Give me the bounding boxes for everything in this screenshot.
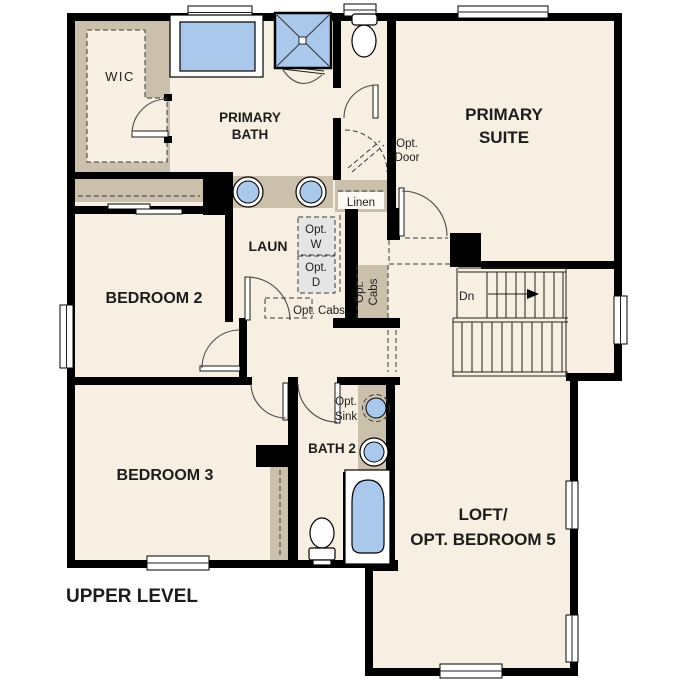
window-icon [458,6,548,18]
wall-suite-chunk [387,208,400,240]
bathtub-icon [170,15,263,77]
wall-bedroom3-closet-chunk [256,445,298,467]
bedroom2-label: BEDROOM 2 [106,290,203,307]
wall-laundry-bottom-bar [333,318,400,328]
loft-label-2: OPT. BEDROOM 5 [410,530,555,549]
wall-hall-left [239,318,247,385]
wall-bedroom2-3-divider [67,377,252,385]
primary-suite-label-1: PRIMARY [465,105,543,124]
laundry-label: LAUN [249,238,288,254]
primary-bath-label-1: PRIMARY [219,110,281,125]
opt-dryer-label-2: D [312,277,320,289]
window-icon [60,305,73,368]
opt-sink-label-1: Opt. [335,396,357,408]
window-icon [566,615,578,662]
wall-laundry-left [225,206,233,322]
toilet-icon [352,14,377,57]
window-icon [614,296,627,344]
wall-wc-left-low [333,118,341,180]
bathtub-icon [345,470,390,564]
stairs-down-label: Dn [459,289,474,303]
shower-icon [275,13,331,68]
window-icon [147,556,209,570]
opt-cabs-vertical-label-1: Opt. [354,281,366,303]
wall-suite-left [387,13,396,210]
opt-cabs-vertical-label-2: Cabs [368,278,380,305]
page-title: UPPER LEVEL [66,586,198,607]
wall-wic-door-jamb-top [164,94,172,101]
bedroom2-closet [75,179,203,202]
toilet-icon [309,518,335,565]
wall-loft-left [365,568,373,676]
opt-door-label-1: Opt. [396,138,418,150]
wall-wc-left-top [333,13,341,88]
primary-suite-label-2: SUITE [479,128,529,147]
floor-plan-page: WIC PRIMARY BATH PRIMARY SUITE BEDROOM 2… [0,0,687,687]
opt-dryer-label-1: Opt. [305,262,327,274]
bath2-label: BATH 2 [308,441,356,456]
wall-laundry-linen-column [345,208,358,325]
wall-bedroom3-right [288,377,298,568]
opt-washer-label-2: W [311,239,322,251]
opt-door-label-2: Door [395,152,420,164]
opt-washer-label-1: Opt. [305,224,327,236]
linen-label: Linen [347,197,375,209]
loft-label-1: LOFT/ [458,505,507,524]
floor-plan-canvas: WIC PRIMARY BATH PRIMARY SUITE BEDROOM 2… [0,0,687,687]
primary-bath-label-2: BATH [232,127,269,142]
opt-sink-label-2: Sink [335,411,358,423]
wall-wic-south [67,172,203,179]
bedroom3-label: BEDROOM 3 [117,467,214,484]
opt-cabs-hall-label: Opt. Cabs [293,305,345,317]
window-icon [566,481,578,529]
sink-icon [360,438,388,466]
window-icon [440,664,502,678]
wall-suite-bottom-chunk [450,233,481,267]
wic-label: WIC [105,69,135,84]
wall-step [566,373,622,381]
wall-left [67,13,75,568]
